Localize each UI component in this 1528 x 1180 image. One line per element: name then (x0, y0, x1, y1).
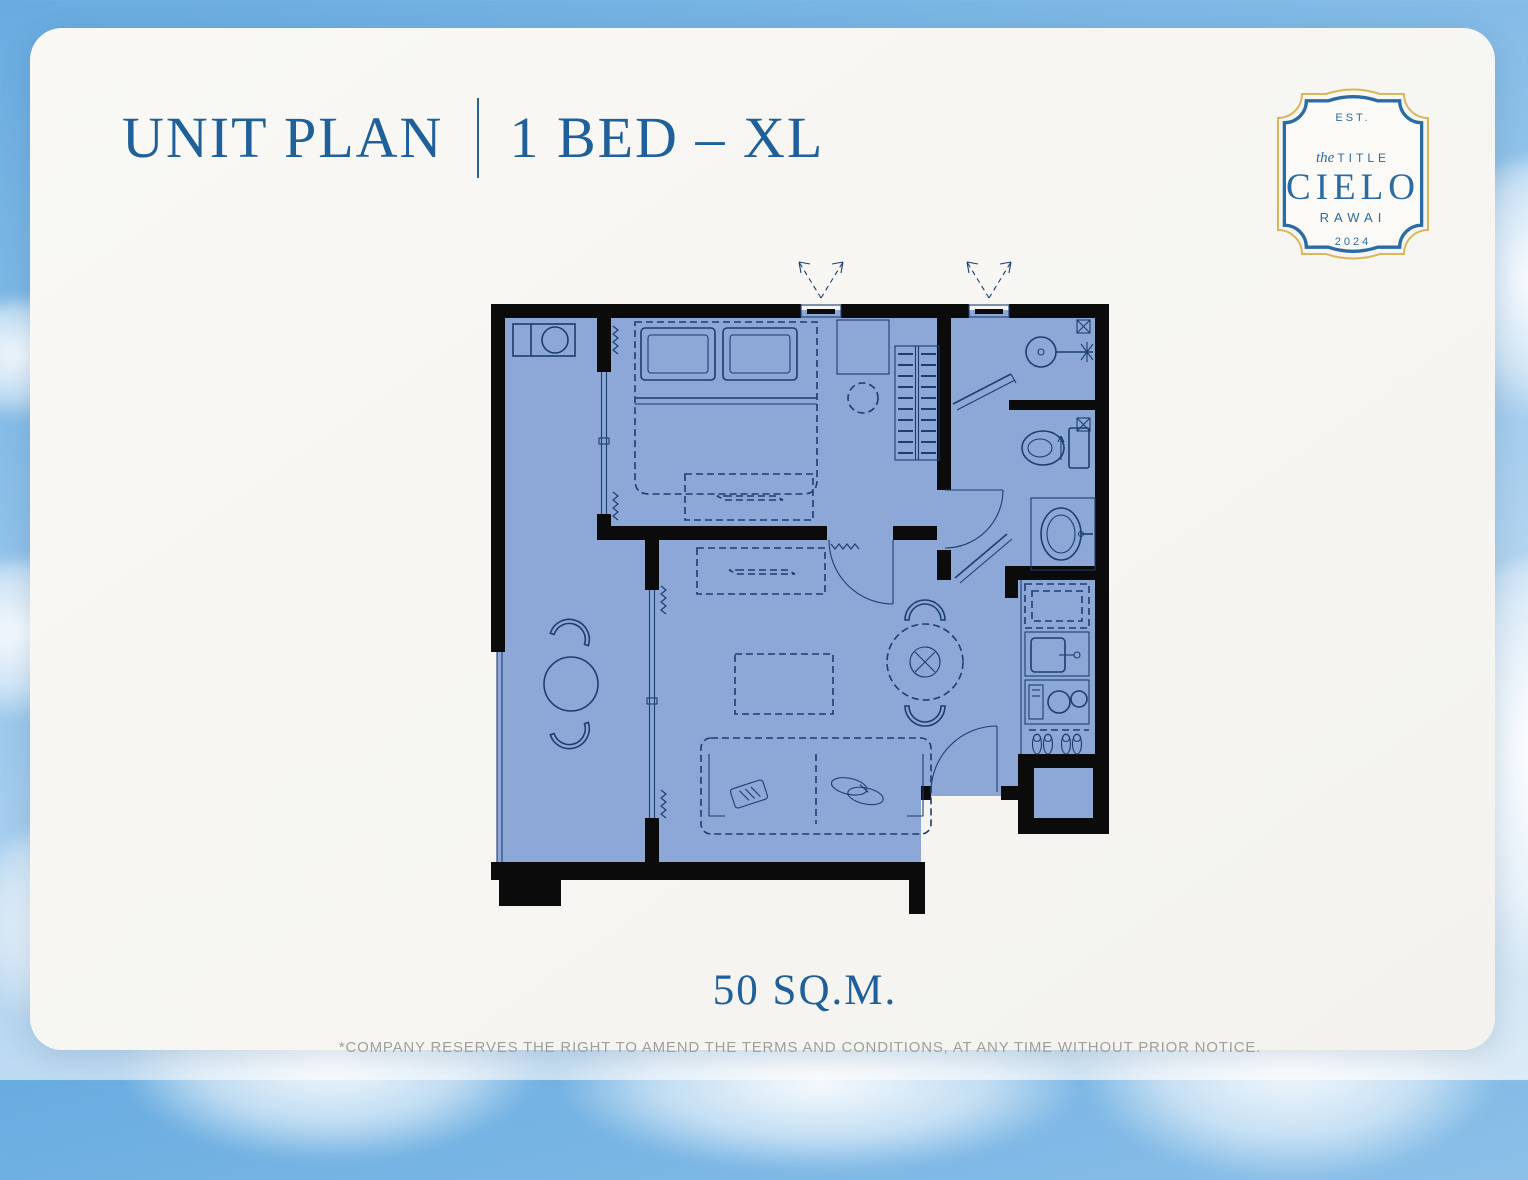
floor-plan (485, 244, 1115, 920)
badge-brand-name: CIELO (1268, 166, 1438, 209)
badge-title-word: TITLE (1337, 151, 1390, 165)
plan-card: UNIT PLAN 1 BED – XL EST. theTITLE CIELO… (30, 28, 1495, 1050)
badge-brand-line: theTITLE (1268, 150, 1438, 167)
disclaimer-text: *COMPANY RESERVES THE RIGHT TO AMEND THE… (339, 1039, 1261, 1056)
page-header: UNIT PLAN 1 BED – XL (122, 98, 824, 178)
page-title: UNIT PLAN (122, 109, 443, 167)
unit-type-label: 1 BED – XL (509, 109, 824, 167)
badge-the: the (1316, 150, 1334, 166)
exhaust-arrows-icon (799, 262, 843, 298)
exhaust-arrows-icon (967, 262, 1011, 298)
badge-location: RAWAI (1268, 210, 1438, 225)
badge-est-label: EST. (1268, 112, 1438, 124)
area-label: 50 SQ.M. (713, 966, 897, 1015)
title-divider (477, 98, 479, 178)
window (799, 262, 843, 317)
entrance-landing (1034, 768, 1093, 818)
brand-badge: EST. theTITLE CIELO RAWAI 2024 (1268, 84, 1438, 264)
badge-year: 2024 (1268, 236, 1438, 248)
window (967, 262, 1011, 317)
